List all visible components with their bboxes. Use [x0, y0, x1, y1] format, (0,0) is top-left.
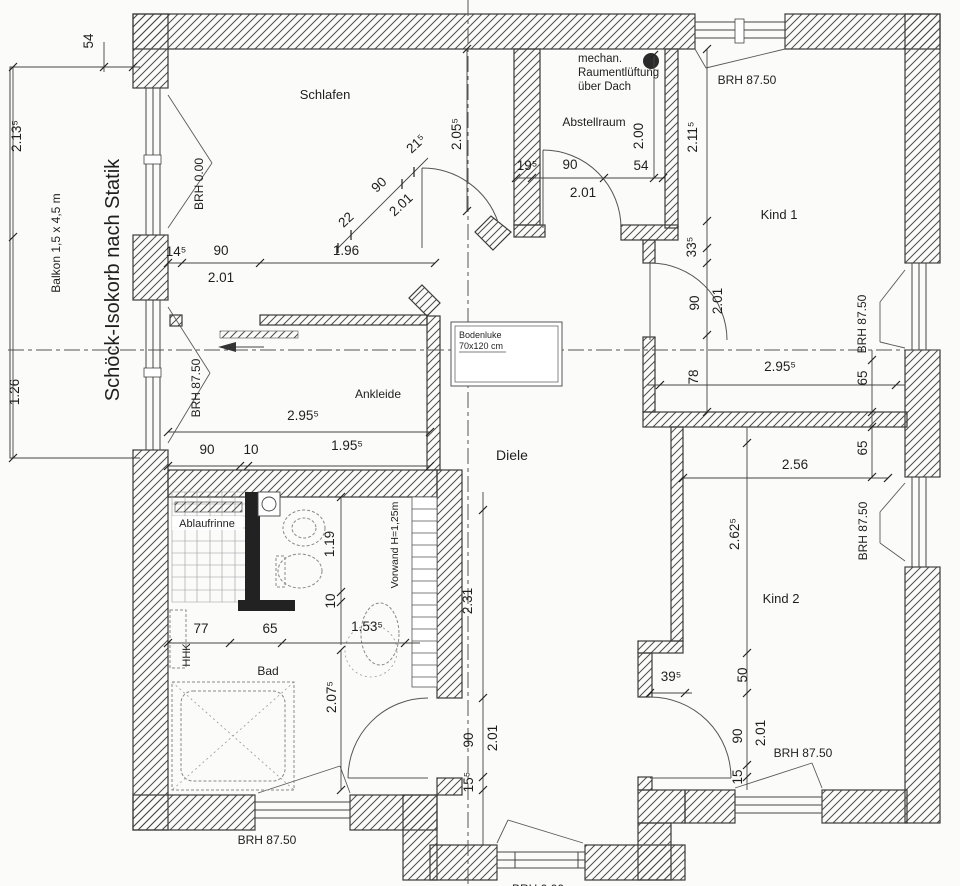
- brh-ankleide-fenster: BRH 87.50: [189, 358, 203, 417]
- wall-left-a: [133, 14, 168, 88]
- fixtures: [170, 53, 659, 790]
- room-label-kind2: Kind 2: [763, 591, 800, 606]
- dim-abstell-90: 90: [562, 157, 577, 172]
- dim-diele-155: 15⁵: [461, 772, 476, 793]
- wall-kind2-west-lo-b: [638, 777, 652, 790]
- window-bad-bottom: [255, 766, 350, 830]
- room-label-kind1: Kind 1: [761, 207, 798, 222]
- wall-schlafen-ankleide: [260, 315, 427, 325]
- wall-abstell-bottom-r: [621, 225, 678, 240]
- window-diele-bottom: [497, 820, 585, 880]
- wall-ankleide-bad: [168, 470, 437, 497]
- dim-kind1-65: 65: [855, 370, 870, 385]
- brh-bad-unten: BRH 87.50: [238, 833, 297, 847]
- dim-abstell-54: 54: [633, 158, 649, 173]
- bidet-tank: [276, 556, 285, 587]
- dim-diag-90: 90: [368, 174, 389, 195]
- shower-tiles: [172, 492, 248, 602]
- shower-drain-icon: [262, 497, 276, 511]
- dim-diag-201: 2.01: [386, 190, 415, 219]
- note-isokorb: Schöck-Isokorb nach Statik: [102, 158, 124, 401]
- wall-top-left: [133, 14, 695, 49]
- note-bodenluke-line2: 70x120 cm: [459, 341, 503, 351]
- drain-channel: [175, 502, 242, 512]
- note-bodenluke-line1: Bodenluke: [459, 330, 502, 340]
- dim-kind1-78: 78: [686, 369, 701, 384]
- brh-kind1-rechts: BRH 87.50: [855, 294, 869, 353]
- wall-abstell-bottom-l: [514, 225, 545, 237]
- floorplan-drawing: Schlafen Abstellraum Kind 1 Kind 2 Diele…: [0, 0, 960, 886]
- brh-kind1-oben: BRH 87.50: [718, 73, 777, 87]
- room-label-bad: Bad: [257, 664, 278, 678]
- dim-schlafen-145: 14⁵: [166, 244, 187, 259]
- wc-icon: [283, 510, 325, 546]
- dim-left-2135: 2.13⁵: [9, 120, 24, 152]
- brh-diele-unten: BRH 0.00: [512, 882, 564, 886]
- window-kind1-top: [695, 14, 785, 68]
- dim-abstell-201: 2.01: [570, 185, 596, 200]
- dim-abstell-195: 19⁵: [517, 158, 538, 173]
- room-label-abstellraum: Abstellraum: [562, 115, 625, 129]
- wall-kind2-west-lo-a: [638, 653, 652, 697]
- wall-right-b: [905, 350, 940, 477]
- dim-kind2-256: 2.56: [782, 457, 808, 472]
- dim-diele-231: 2.31: [460, 588, 475, 614]
- brh-kind2-rechts: BRH 87.50: [856, 501, 870, 560]
- wall-kind2-corner-a: [638, 790, 685, 823]
- door-kind2: [650, 697, 731, 778]
- wall-left-b: [133, 235, 168, 300]
- dim-kind2-65: 65: [855, 440, 870, 455]
- window-kind1-right: [880, 263, 940, 350]
- wall-abstell-left: [514, 49, 540, 225]
- wall-kind2-corner-b: [638, 823, 671, 880]
- door-bad: [348, 698, 428, 778]
- window-kind2-right: [880, 477, 940, 567]
- dim-kind2-15: 15: [730, 769, 745, 784]
- note-vent-line1: mechan.: [578, 53, 622, 65]
- wall-bad-bottom-l: [133, 795, 255, 830]
- wall-diele-bottom-l: [430, 845, 497, 880]
- brh-kind2-unten: BRH 87.50: [774, 746, 833, 760]
- dim-bad-65: 65: [262, 621, 277, 636]
- wall-kind2-step: [638, 641, 683, 653]
- wall-right-c: [905, 567, 940, 823]
- dim-diag-22: 22: [335, 209, 356, 230]
- room-label-balkon: Balkon 1,5 x 4,5 m: [49, 193, 63, 292]
- wall-bad-east-a: [437, 470, 462, 698]
- note-vorwand: Vorwand H=1,25m: [389, 501, 401, 588]
- dim-axis-2055: 2.05⁵: [449, 118, 464, 150]
- dim-bad-1535: 1.53⁵: [351, 619, 383, 634]
- dim-kind1-335: 33⁵: [684, 237, 699, 258]
- wall-kind2-west-up: [671, 427, 683, 641]
- dim-kind1-201: 2.01: [710, 288, 725, 314]
- dim-abstell-200: 2.00: [631, 123, 646, 149]
- note-ablaufrinne: Ablaufrinne: [179, 518, 235, 530]
- dim-kind2-201: 2.01: [753, 720, 768, 746]
- dim-ankleide-1955: 1.95⁵: [331, 438, 363, 453]
- shower-partition-foot: [238, 600, 295, 611]
- wall-abstell-right: [665, 49, 678, 228]
- room-label-diele: Diele: [496, 447, 528, 463]
- wall-bad-east-b: [437, 778, 462, 795]
- wall-kind1-kind2: [643, 412, 907, 427]
- note-hhk: HHK: [181, 643, 193, 667]
- room-label-schlafen: Schlafen: [300, 87, 351, 102]
- dim-bad-119: 1.19: [322, 531, 337, 557]
- dim-kind1-2115: 2.11⁵: [685, 122, 700, 153]
- dim-schlafen-201: 2.01: [208, 270, 234, 285]
- dim-kind2-395: 39⁵: [661, 669, 682, 684]
- dim-kind2-2625: 2.62⁵: [727, 518, 742, 550]
- dim-kind1-2955: 2.95⁵: [764, 359, 796, 374]
- dim-ankleide-10: 10: [243, 442, 258, 457]
- dim-ankleide-90: 90: [199, 442, 214, 457]
- room-label-ankleide: Ankleide: [355, 387, 401, 401]
- wall-kind1-west-a: [643, 240, 655, 263]
- dim-diele-201: 2.01: [485, 725, 500, 751]
- bathtub-icon: [172, 682, 294, 790]
- dim-bad-2075: 2.07⁵: [324, 681, 339, 713]
- wall-ankleide-pier: [170, 315, 182, 326]
- dim-kind2-90: 90: [730, 728, 745, 743]
- note-vent-line3: über Dach: [578, 81, 631, 93]
- dim-diag-215: 21⁵: [403, 131, 428, 156]
- dim-tl-54: 54: [81, 33, 96, 49]
- dim-bad-77: 77: [193, 621, 208, 636]
- dim-left-126: 1.26: [7, 379, 22, 405]
- wall-diagonal-lower: [409, 285, 440, 316]
- dim-schlafen-90: 90: [213, 243, 228, 258]
- dim-bad-10: 10: [323, 593, 338, 608]
- window-kind2-bottom: [735, 763, 822, 823]
- wc-bowl-icon: [292, 518, 316, 538]
- brh-balkon-tuer: BRH 0.00: [192, 158, 206, 210]
- floorplan-page: Schlafen Abstellraum Kind 1 Kind 2 Diele…: [0, 0, 960, 886]
- dim-diele-90: 90: [461, 732, 476, 747]
- dim-schlafen-196: 1.96: [333, 243, 359, 258]
- wall-ankleide-east: [427, 316, 440, 470]
- wall-kind1-west-b: [643, 337, 655, 412]
- low-partition-strip: [220, 331, 298, 338]
- washbasin-icon: [361, 603, 399, 665]
- dim-kind2-50: 50: [735, 667, 750, 682]
- vorwand-ladder: [412, 497, 437, 687]
- wall-kind2-bottom-l: [685, 790, 735, 823]
- wall-right-a: [905, 14, 940, 263]
- wall-left-c: [133, 450, 168, 830]
- dim-kind1-90: 90: [687, 295, 702, 310]
- note-vent-line2: Raumentlüftung: [578, 67, 659, 79]
- dim-ankleide-2955: 2.95⁵: [287, 408, 319, 423]
- wall-kind2-bottom-r: [822, 790, 907, 823]
- wall-diagonal-upper: [475, 216, 511, 250]
